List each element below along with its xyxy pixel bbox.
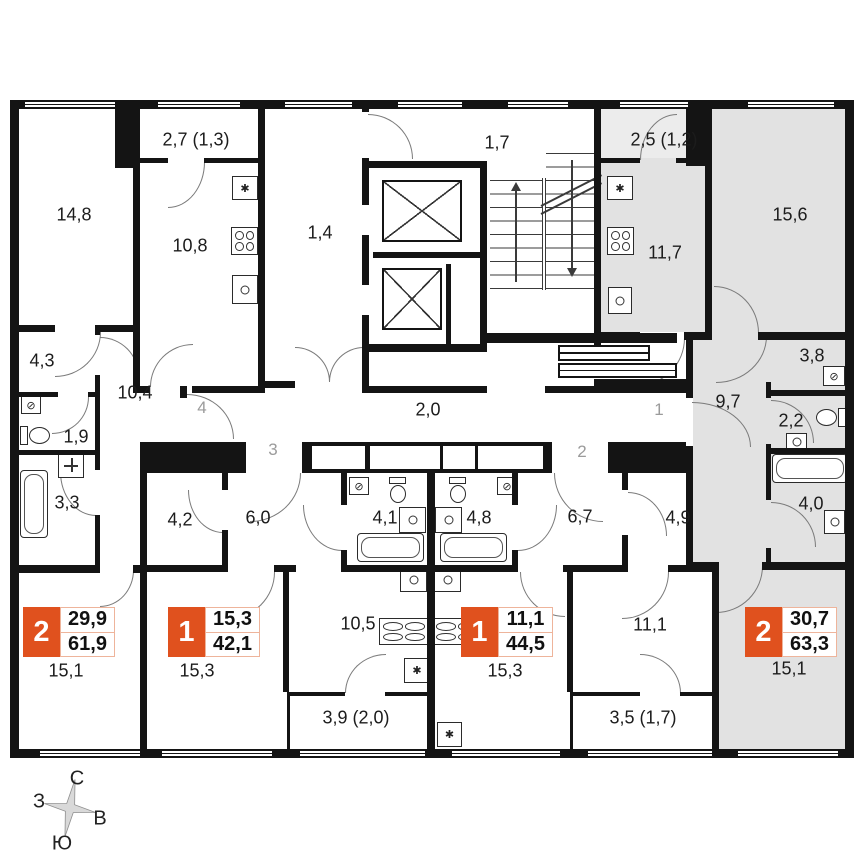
window [748, 100, 834, 109]
badge-areas: 30,7 63,3 [782, 607, 837, 657]
door-arc [640, 654, 681, 693]
room-area-label: 3,9 (2,0) [322, 708, 389, 729]
window [158, 100, 240, 109]
vent-icon: ✱ [437, 722, 462, 747]
burner [436, 622, 456, 631]
washer-glyph: ⊘ [502, 480, 511, 493]
sink-icon [608, 287, 632, 314]
apartment-entry-number: 1 [654, 400, 663, 420]
wall [95, 395, 100, 470]
window [452, 749, 560, 758]
wall [567, 565, 573, 692]
vent-icon: ✱ [607, 176, 633, 200]
toilet-icon [386, 477, 410, 505]
door-arc [628, 492, 667, 536]
wall-balcony [289, 692, 345, 696]
total-area-value: 44,5 [499, 633, 552, 657]
wall-balcony [573, 692, 640, 696]
window [40, 749, 140, 758]
badge-areas: 15,3 42,1 [205, 607, 260, 657]
washer-icon: ⊘ [823, 366, 845, 386]
wall [676, 158, 705, 163]
toilet-icon [20, 424, 60, 448]
wall [362, 161, 487, 168]
living-area-value: 15,3 [206, 608, 259, 633]
compass-east-label: В [93, 808, 106, 831]
room-area-label: 4,1 [372, 508, 397, 529]
wall [10, 749, 40, 758]
wall [133, 565, 140, 573]
wall [594, 100, 601, 345]
room-area-label: 2,7 (1,3) [162, 130, 229, 151]
vent-icon: ✱ [232, 176, 258, 200]
badge-areas: 11,1 44,5 [498, 607, 553, 657]
door-arc [329, 347, 364, 382]
burner [235, 242, 244, 251]
window [398, 100, 462, 109]
wall [838, 749, 854, 758]
burner [622, 242, 631, 251]
apartment-badge: 1 11,1 44,5 [461, 607, 553, 657]
wall [362, 100, 369, 112]
wall [446, 264, 451, 344]
burner [246, 231, 255, 240]
vent-glyph: ✱ [412, 664, 421, 677]
apartment-entry-number: 2 [577, 442, 586, 462]
wall [705, 100, 712, 336]
room-area-label: 3,8 [799, 346, 824, 367]
wall [480, 161, 487, 352]
wall [766, 332, 771, 338]
living-area-value: 29,9 [61, 608, 114, 633]
door-arc [55, 332, 101, 377]
wall [180, 386, 187, 398]
vent-glyph: ✱ [445, 728, 454, 741]
room-area-label: 10,5 [340, 614, 375, 635]
wall [686, 446, 693, 566]
room-area-label: 1,9 [63, 427, 88, 448]
sink-icon [824, 510, 845, 534]
door-arc [295, 347, 330, 382]
room-area-label: 4,9 [665, 508, 690, 529]
apartment-badge: 2 29,9 61,9 [23, 607, 115, 657]
room-area-label: 1,4 [307, 223, 332, 244]
floor-plan: ✱ ✱ ✱ ✱ ⊘ ⊘ ⊘ ⊘ 14,8 2,7 (1,3) 10,8 4,3 … [0, 0, 864, 864]
burner [611, 231, 620, 240]
room-area-label: 2,0 [415, 400, 440, 421]
closet-niche [312, 446, 365, 469]
window [508, 100, 568, 109]
window [162, 749, 272, 758]
wall-closet-band [140, 442, 246, 473]
room-area-label: 1,7 [484, 133, 509, 154]
room-area-label: 11,1 [633, 615, 667, 636]
burner [436, 633, 456, 642]
wall-balcony [385, 692, 427, 696]
wall [462, 100, 508, 109]
stair-arrow-down [567, 268, 577, 277]
wall [712, 562, 719, 753]
bathtub-icon [440, 533, 507, 562]
closet-niche [443, 446, 475, 469]
wall [686, 332, 693, 398]
burner [235, 231, 244, 240]
toilet-tank [20, 426, 28, 445]
room-area-label: 15,3 [179, 661, 214, 682]
stair-divider [542, 178, 546, 290]
wall [512, 473, 518, 505]
room-area-label: 15,6 [772, 205, 807, 226]
wall [352, 100, 398, 109]
vent-shaft [558, 363, 677, 378]
wall [341, 473, 347, 505]
room-area-label: 15,1 [48, 661, 83, 682]
wall [758, 332, 852, 340]
apartment-badge: 1 15,3 42,1 [168, 607, 260, 657]
wall [10, 325, 55, 332]
compass-west-label: З [33, 791, 45, 814]
room-area-label: 2,5 (1,2) [630, 130, 697, 151]
room-area-label: 6,0 [245, 508, 270, 529]
compass-north-label: С [70, 768, 84, 791]
toilet-icon [806, 406, 846, 430]
window [285, 100, 352, 109]
sink-icon [435, 507, 462, 533]
room-area-label: 11,7 [648, 243, 682, 264]
wall [594, 379, 693, 393]
window [25, 100, 115, 109]
rooms-count: 2 [745, 607, 782, 657]
door-arc [100, 570, 134, 607]
wall [95, 375, 100, 395]
window [620, 100, 688, 109]
room-area-label: 6,7 [567, 507, 592, 528]
wall [95, 325, 100, 335]
burner [611, 242, 620, 251]
apartment-badge: 2 30,7 63,3 [745, 607, 837, 657]
bathtub-icon [20, 470, 48, 538]
wall [545, 386, 594, 393]
rooms-count: 1 [461, 607, 498, 657]
stair-arrow [571, 160, 573, 270]
stove-icon [379, 618, 429, 645]
room-area-label: 9,7 [715, 392, 740, 413]
room-area-label: 4,8 [466, 508, 491, 529]
total-area-value: 63,3 [783, 633, 836, 657]
wall [362, 386, 487, 393]
wall [272, 749, 300, 758]
vent-shaft [558, 345, 650, 361]
sink-icon [232, 275, 258, 304]
wall [95, 515, 100, 565]
door-arc [150, 344, 193, 387]
door-arc [368, 114, 413, 159]
rooms-count: 2 [23, 607, 60, 657]
door-arc [188, 490, 223, 533]
apartment-entry-number: 4 [197, 398, 206, 418]
toilet-bowl [816, 409, 837, 426]
wall [766, 448, 852, 454]
wall [341, 565, 435, 572]
stove-icon [607, 227, 634, 255]
total-area-value: 61,9 [61, 633, 114, 657]
wall [19, 392, 58, 397]
room-area-label: 4,2 [167, 510, 192, 531]
wall [100, 325, 140, 332]
door-arc [187, 394, 234, 439]
closet-niche [370, 446, 440, 469]
room-area-label: 10,8 [172, 236, 207, 257]
toilet-bowl [390, 485, 406, 503]
wall [192, 386, 258, 393]
room-area-label: 2,2 [778, 411, 803, 432]
wall [601, 332, 640, 340]
wall [601, 158, 640, 163]
wall [258, 381, 295, 388]
vent-glyph: ✱ [615, 182, 624, 195]
wall [435, 565, 518, 572]
burner [383, 633, 403, 642]
wall [373, 252, 480, 258]
closet-niche [478, 446, 543, 469]
washer-icon: ⊘ [349, 477, 369, 495]
wall [19, 450, 95, 455]
wall [204, 158, 258, 163]
door-arc [303, 505, 342, 551]
living-area-value: 11,1 [499, 608, 552, 633]
room-area-label: 3,5 (1,7) [609, 708, 676, 729]
wall [427, 473, 435, 753]
wall [283, 565, 289, 692]
washer-glyph: ⊘ [26, 399, 35, 412]
wall [487, 333, 677, 343]
stove-icon [231, 227, 258, 255]
wall [622, 473, 628, 490]
total-area-value: 42,1 [206, 633, 259, 657]
wall [766, 390, 852, 396]
toilet-bowl [450, 485, 466, 503]
bathtub-icon [772, 454, 848, 483]
room-area-label: 4,3 [29, 351, 54, 372]
wall [19, 565, 100, 573]
bathtub-icon [357, 533, 424, 562]
washer-icon: ⊘ [21, 396, 41, 414]
room-area-label: 15,1 [771, 659, 806, 680]
compass-south-label: Ю [52, 833, 72, 856]
burner [622, 231, 631, 240]
wall [137, 158, 168, 163]
toilet-icon [446, 477, 470, 505]
door-arc [345, 654, 386, 693]
wall [362, 344, 487, 352]
door-arc [622, 572, 669, 619]
burner [405, 622, 425, 631]
water-heater-icon [58, 452, 84, 478]
wall [140, 565, 228, 572]
door-arc [518, 505, 557, 551]
burner [383, 622, 403, 631]
wall [845, 100, 854, 758]
toilet-tank [389, 477, 406, 484]
wall-balcony [570, 692, 573, 749]
wall [560, 749, 588, 758]
elevator-car [382, 180, 462, 242]
elevator-car [382, 268, 442, 330]
window [738, 749, 838, 758]
wall [222, 473, 228, 490]
wall [362, 235, 369, 285]
wall [10, 100, 19, 758]
badge-areas: 29,9 61,9 [60, 607, 115, 657]
room-area-label: 14,8 [56, 205, 91, 226]
toilet-tank [449, 477, 466, 484]
wall-balcony [287, 692, 290, 749]
wall [88, 392, 95, 397]
living-area-value: 30,7 [783, 608, 836, 633]
vent-glyph: ✱ [240, 182, 249, 195]
wall [133, 100, 140, 393]
toilet-bowl [29, 427, 50, 444]
wall-balcony [680, 692, 712, 696]
stair-arrow [515, 190, 517, 282]
burner [246, 242, 255, 251]
wall [140, 473, 147, 753]
burner [405, 633, 425, 642]
wall [762, 562, 852, 570]
wall [668, 565, 712, 572]
room-area-label: 4,0 [798, 494, 823, 515]
wall [622, 535, 628, 572]
room-area-label: 10,4 [117, 383, 152, 404]
door-arc [168, 162, 205, 208]
apartment-entry-number: 3 [268, 440, 277, 460]
sink-icon [399, 507, 426, 533]
stair-arrow-up [511, 182, 521, 191]
room-area-label: 3,3 [54, 493, 79, 514]
window [300, 749, 425, 758]
washer-glyph: ⊘ [354, 480, 363, 493]
washer-glyph: ⊘ [829, 370, 838, 383]
rooms-count: 1 [168, 607, 205, 657]
window [588, 749, 712, 758]
wall [258, 100, 265, 393]
wall-closet-band [608, 442, 686, 473]
room-area-label: 15,3 [487, 661, 522, 682]
